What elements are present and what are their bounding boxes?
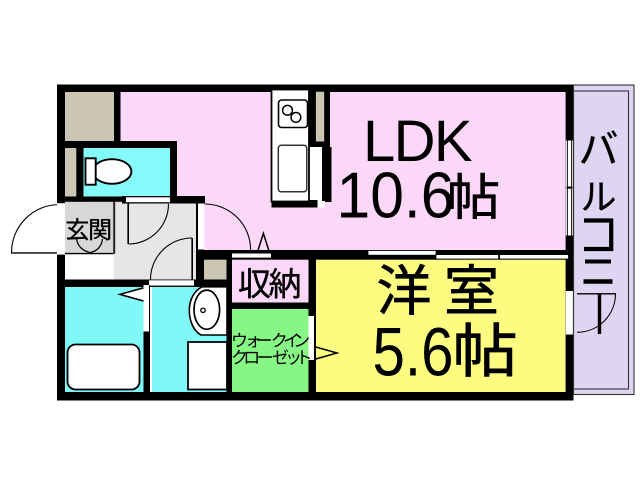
svg-text:10.6: 10.6 [337,159,455,232]
svg-text:5.6: 5.6 [373,313,454,390]
